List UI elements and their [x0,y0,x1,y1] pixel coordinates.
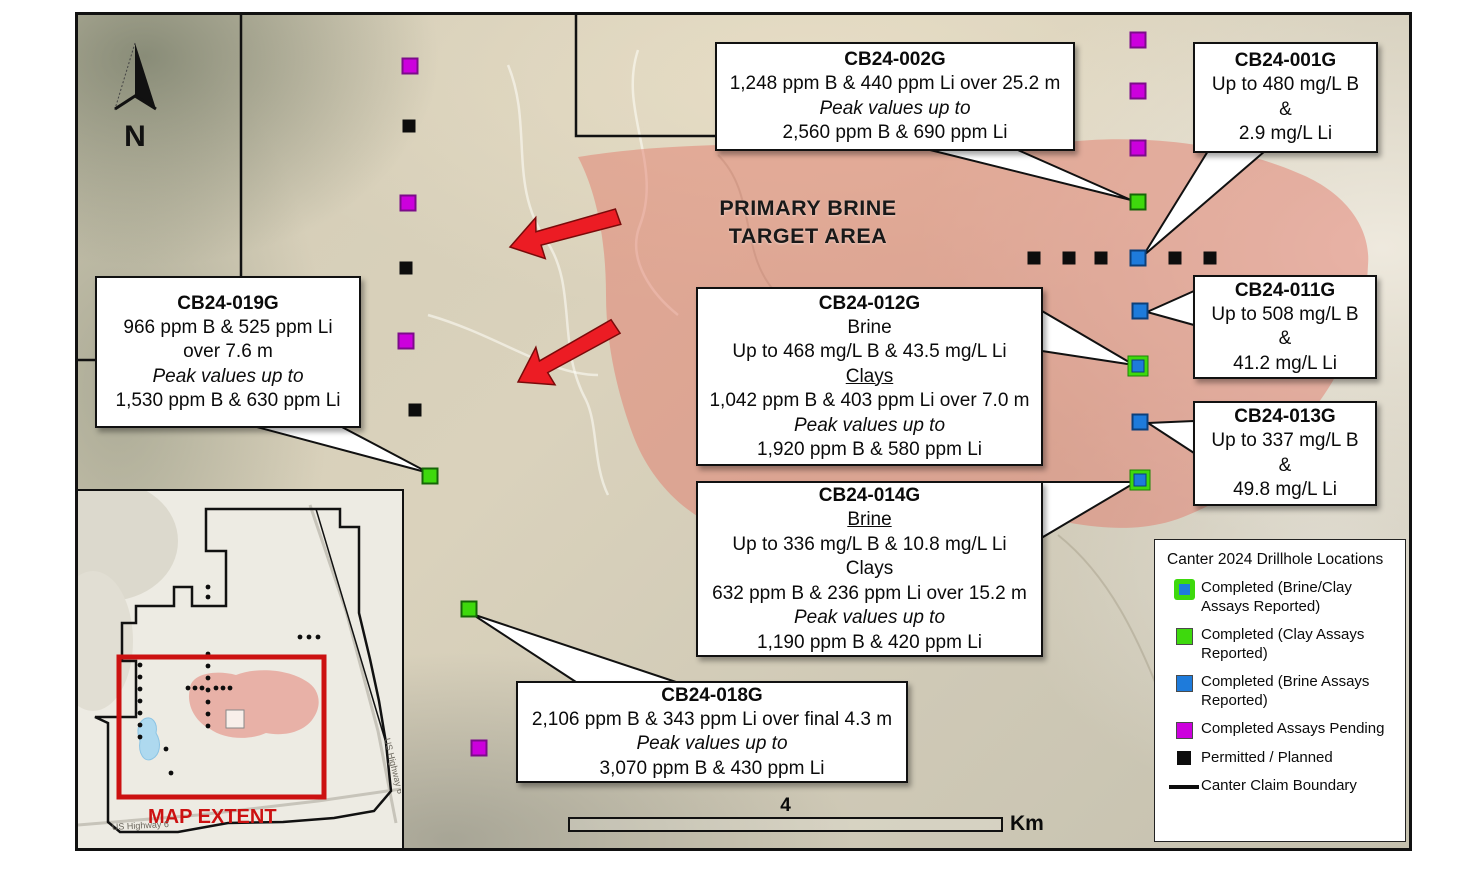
drillhole-marker-permitted [403,120,416,133]
assay-result: 41.2 mg/L Li [1199,352,1371,377]
assay-note: Peak values up to [522,732,902,757]
legend-item-permitted: Permitted / Planned [1167,748,1395,767]
drillhole-id: CB24-002G [721,47,1069,72]
drillhole-marker-assays-pending [402,58,419,75]
drillhole-marker-permitted [409,404,422,417]
drillhole-marker-cb24-019g [422,468,439,485]
inset-map-artwork: MAP EXTENT US Highway 6 US Highway 6 [78,491,401,851]
legend-title: Canter 2024 Drillhole Locations [1167,550,1395,569]
drillhole-marker-permitted [1028,252,1041,265]
callout-cb24-012g: CB24-012G Brine Up to 468 mg/L B & 43.5 … [696,287,1043,466]
assay-result: 1,530 ppm B & 630 ppm Li [101,389,355,414]
callout-cb24-011g: CB24-011G Up to 508 mg/L B & 41.2 mg/L L… [1193,275,1377,379]
scale-bar-rect [568,817,1003,832]
drillhole-marker-assays-pending [400,195,417,212]
assay-note: Peak values up to [101,365,355,390]
clay-marker-icon [1176,628,1193,645]
assay-result: Up to 468 mg/L B & 43.5 mg/L Li [702,340,1037,365]
drillhole-marker-permitted [1204,252,1217,265]
scale-distance: 4 [568,795,1003,817]
assay-result: Up to 480 mg/L B [1199,73,1372,98]
drillhole-marker-assays-pending [1130,140,1147,157]
legend-item-pending: Completed Assays Pending [1167,719,1395,739]
drillhole-id: CB24-012G [702,291,1037,316]
drillhole-marker-assays-pending [398,333,415,350]
legend-item-brine-clay: Completed (Brine/Clay Assays Reported) [1167,578,1395,616]
assay-result: 3,070 ppm B & 430 ppm Li [522,757,902,782]
assay-result: 2.9 mg/L Li [1199,122,1372,147]
assay-section: Clays [702,365,1037,390]
callout-cb24-013g: CB24-013G Up to 337 mg/L B & 49.8 mg/L L… [1193,401,1377,506]
main-map: N PRIMARY BRINE TARGET AREA CB24-002G 1,… [75,12,1412,851]
drillhole-id: CB24-018G [522,683,902,708]
assay-section: Clays [702,557,1037,582]
drillhole-marker-permitted [1169,252,1182,265]
inset-locator-map: MAP EXTENT US Highway 6 US Highway 6 [78,489,404,851]
assay-section: Brine [702,508,1037,533]
drillhole-marker-cb24-001g [1130,250,1147,267]
assay-result: 1,920 ppm B & 580 ppm Li [702,438,1037,463]
assay-result: Up to 337 mg/L B [1199,429,1371,454]
drillhole-marker-cb24-013g [1132,414,1149,431]
legend: Canter 2024 Drillhole Locations Complete… [1154,539,1406,842]
callout-cb24-019g: CB24-019G 966 ppm B & 525 ppm Li over 7.… [95,276,361,428]
drillhole-marker-cb24-018g [461,601,478,618]
assay-result: 49.8 mg/L Li [1199,478,1371,503]
figure-canvas: N PRIMARY BRINE TARGET AREA CB24-002G 1,… [0,0,1463,874]
drillhole-marker-permitted [400,262,413,275]
assay-section: Brine [702,316,1037,341]
legend-item-clay: Completed (Clay Assays Reported) [1167,625,1395,663]
drillhole-marker-assays-pending [471,740,488,757]
assay-result: 966 ppm B & 525 ppm Li [101,316,355,341]
assay-result: 2,560 ppm B & 690 ppm Li [721,121,1069,146]
brine-clay-marker-icon [1174,579,1195,600]
drillhole-id: CB24-011G [1199,278,1371,303]
assay-result: & [1199,98,1372,123]
brine-marker-icon [1176,675,1193,692]
assay-result: Up to 508 mg/L B [1199,303,1371,328]
assay-note: Peak values up to [721,97,1069,122]
drillhole-marker-cb24-014g [1130,470,1151,491]
assay-result: 1,248 ppm B & 440 ppm Li over 25.2 m [721,72,1069,97]
callout-cb24-018g: CB24-018G 2,106 ppm B & 343 ppm Li over … [516,681,908,783]
assay-result: & [1199,327,1371,352]
drillhole-id: CB24-013G [1199,404,1371,429]
drillhole-id: CB24-001G [1199,48,1372,73]
assay-result: 1,190 ppm B & 420 ppm Li [702,631,1037,656]
assay-result: Up to 336 mg/L B & 10.8 mg/L Li [702,533,1037,558]
claim-boundary-line-icon [1169,785,1199,789]
drillhole-marker-cb24-012g [1128,356,1149,377]
legend-item-claim-boundary: Canter Claim Boundary [1167,776,1395,795]
drillhole-marker-permitted [1095,252,1108,265]
drillhole-id: CB24-019G [101,291,355,316]
assay-result: 1,042 ppm B & 403 ppm Li over 7.0 m [702,389,1037,414]
drillhole-marker-permitted [1063,252,1076,265]
assay-note: Peak values up to [702,414,1037,439]
drillhole-marker-assays-pending [1130,83,1147,100]
drillhole-marker-cb24-002g [1130,194,1147,211]
drillhole-id: CB24-014G [702,483,1037,508]
assay-note: Peak values up to [702,606,1037,631]
callout-cb24-014g: CB24-014G Brine Up to 336 mg/L B & 10.8 … [696,481,1043,657]
assay-result: 2,106 ppm B & 343 ppm Li over final 4.3 … [522,708,902,733]
legend-item-brine: Completed (Brine Assays Reported) [1167,672,1395,710]
permitted-marker-icon [1177,751,1191,765]
drillhole-marker-cb24-011g [1132,303,1149,320]
scale-unit: Km [1010,812,1044,836]
callout-cb24-002g: CB24-002G 1,248 ppm B & 440 ppm Li over … [715,42,1075,151]
pending-marker-icon [1176,722,1193,739]
callout-cb24-001g: CB24-001G Up to 480 mg/L B & 2.9 mg/L Li [1193,42,1378,153]
assay-result: 632 ppm B & 236 ppm Li over 15.2 m [702,582,1037,607]
drillhole-marker-assays-pending [1130,32,1147,49]
assay-result: & [1199,454,1371,479]
assay-result: over 7.6 m [101,340,355,365]
